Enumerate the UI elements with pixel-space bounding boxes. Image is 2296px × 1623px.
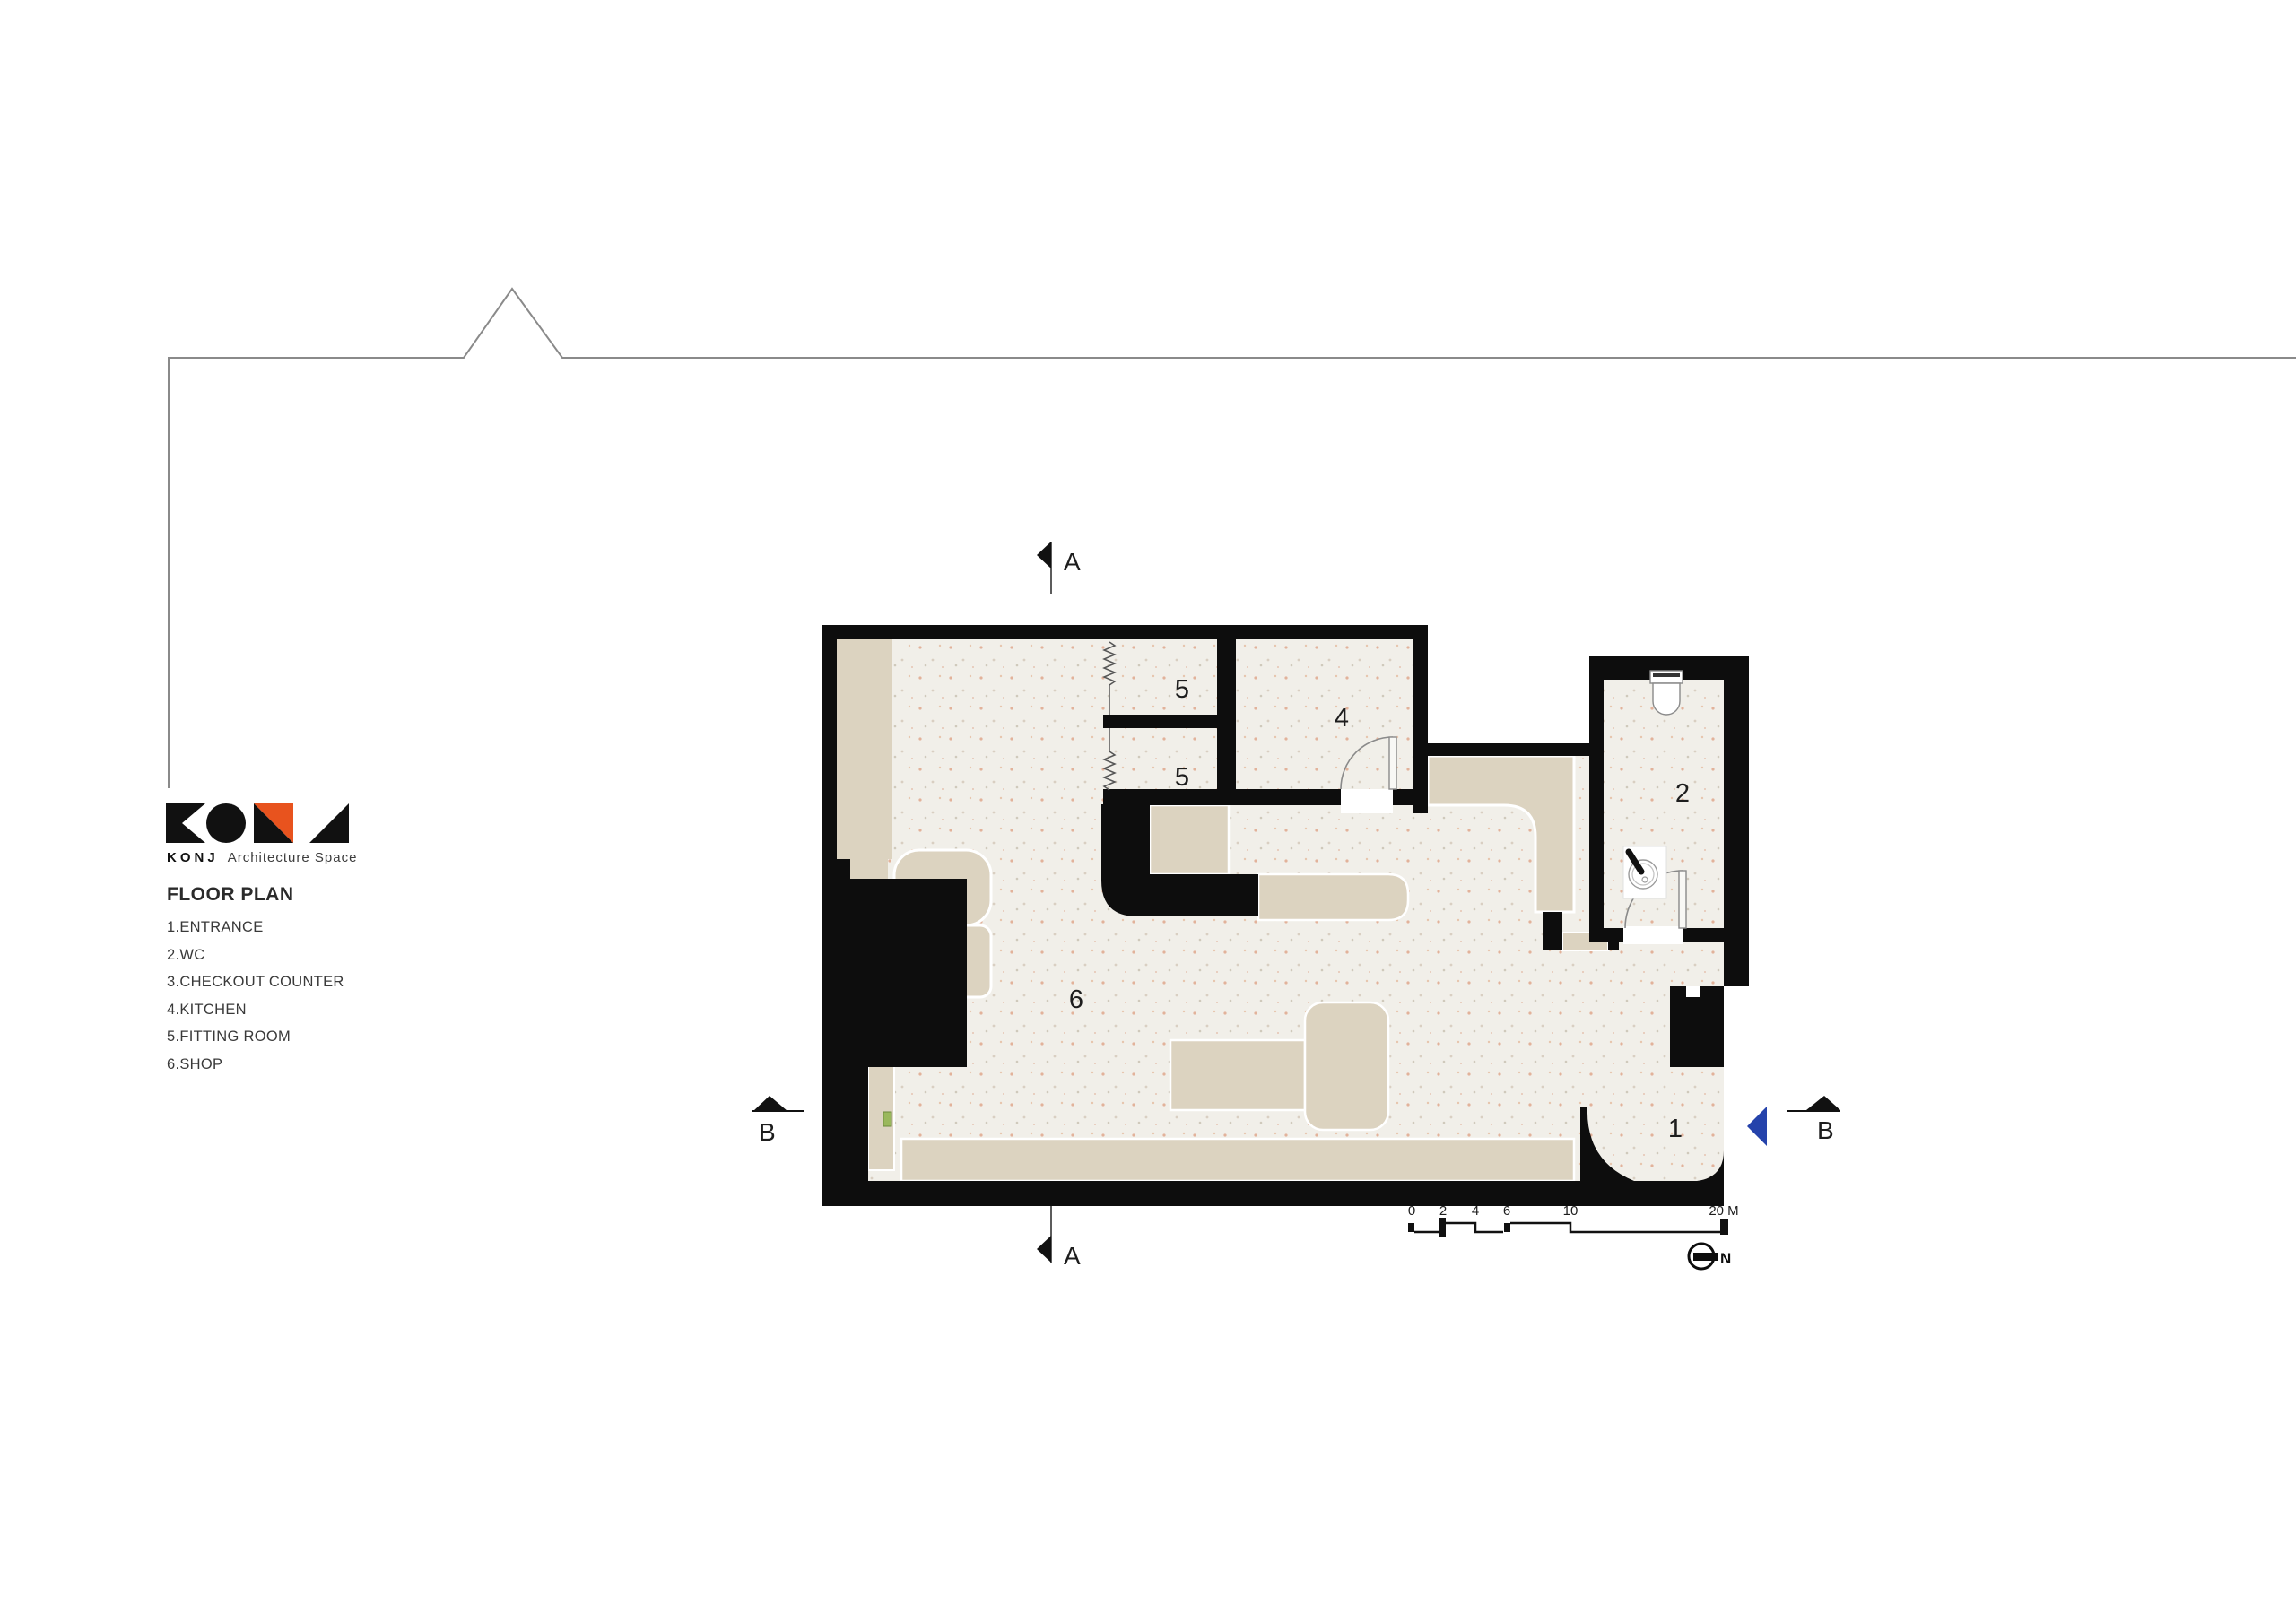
plan-drawing: 5 5 4 2 6 1 A A B B 0 2	[0, 0, 2296, 1623]
scale-bar-line	[1414, 1223, 1720, 1232]
scale-tick-20m: 20 M	[1709, 1203, 1738, 1219]
section-marker-a-bottom: A	[1037, 1206, 1081, 1270]
legend-item-wc: 2.WC	[167, 942, 344, 969]
wall-kitchen-door-stub	[1393, 789, 1413, 805]
scale-block-20	[1720, 1219, 1728, 1235]
section-marker-b-left: B	[752, 1096, 804, 1146]
logo-o-glyph	[206, 803, 246, 843]
plant-icon	[883, 1112, 891, 1126]
wall-entry-pier-step	[1700, 1051, 1724, 1067]
scale-tick-2: 2	[1439, 1203, 1447, 1219]
counter-block	[1150, 805, 1229, 874]
logo-tagline-text: Architecture Space	[228, 850, 358, 865]
section-arrow-icon	[1037, 542, 1051, 568]
north-indicator: N	[1689, 1244, 1731, 1269]
scale-block-0	[1408, 1223, 1414, 1232]
display-table-round	[1305, 1002, 1388, 1130]
wc-door-leaf	[1679, 871, 1686, 928]
scale-tick-4: 4	[1472, 1203, 1479, 1219]
wall-left-lower	[837, 1067, 868, 1181]
scale-bar: 0 2 4 6 10 20 M	[1408, 1203, 1739, 1237]
window-bench	[901, 1139, 1574, 1181]
section-marker-b-right: B	[1747, 1096, 1840, 1146]
label-shop: 6	[1069, 985, 1083, 1014]
sink-drain	[1642, 877, 1648, 882]
legend-item-kitchen: 4.KITCHEN	[167, 996, 344, 1024]
label-kitchen: 4	[1335, 704, 1349, 733]
entry-pier-notch	[1686, 986, 1700, 997]
logo-j-glyph	[309, 803, 349, 843]
wall-stub-lobby	[1608, 933, 1619, 950]
left-wall-liner	[837, 639, 892, 859]
wall-fitting-divider	[1103, 715, 1236, 728]
wall-stub-band-end	[1543, 912, 1562, 950]
legend-item-checkout-counter: 3.CHECKOUT COUNTER	[167, 968, 344, 996]
wall-kitchen-bottom	[1103, 789, 1341, 805]
section-marker-a-top: A	[1037, 542, 1081, 594]
scale-tick-6: 6	[1503, 1203, 1510, 1219]
wall-wc-right	[1724, 656, 1749, 986]
legend-item-entrance: 1.ENTRANCE	[167, 914, 344, 942]
floor-plan-sheet: { "logo": { "brand": "KONJ", "tagline": …	[0, 0, 2296, 1623]
north-label: N	[1720, 1250, 1731, 1267]
wall-right-main	[1413, 625, 1428, 813]
section-label-a-top: A	[1064, 548, 1081, 576]
wall-left-step	[837, 859, 850, 879]
kitchen-door-threshold	[1341, 789, 1393, 813]
section-arrow-icon	[1037, 1236, 1051, 1263]
toilet-bowl	[1653, 683, 1680, 715]
wall-alcove-block	[837, 879, 967, 1067]
label-wc: 2	[1675, 779, 1690, 808]
plan-legend: FLOOR PLAN 1.ENTRANCE 2.WC 3.CHECKOUT CO…	[167, 884, 344, 1078]
scale-tick-10: 10	[1563, 1203, 1578, 1219]
north-bar-icon	[1693, 1253, 1718, 1261]
section-blue-arrow-icon	[1747, 1107, 1767, 1146]
display-table	[1170, 1040, 1305, 1110]
konj-logo	[166, 803, 349, 843]
wall-top	[822, 625, 1428, 639]
legend-item-fitting-room: 5.FITTING ROOM	[167, 1023, 344, 1051]
page-title: FLOOR PLAN	[167, 884, 344, 906]
scale-block-6	[1504, 1223, 1510, 1232]
wall-wc-left	[1589, 656, 1604, 942]
checkout-counter	[1258, 874, 1408, 920]
logo-wordmark: KONJArchitecture Space	[167, 850, 357, 865]
left-wall-liner-step	[848, 859, 888, 879]
wc-door-threshold	[1623, 926, 1683, 944]
section-label-a-bottom: A	[1064, 1242, 1081, 1270]
scale-tick-0: 0	[1408, 1203, 1415, 1219]
wall-corridor-top	[1428, 743, 1589, 756]
legend-item-shop: 6.SHOP	[167, 1051, 344, 1079]
scale-block-2	[1439, 1218, 1446, 1237]
section-label-b-left: B	[759, 1118, 776, 1146]
label-fitting-room-bottom: 5	[1175, 763, 1189, 792]
wall-left	[822, 625, 837, 1206]
wall-wc-bottom-right	[1683, 928, 1724, 942]
label-entrance: 1	[1668, 1115, 1683, 1143]
logo-brand-text: KONJ	[167, 850, 219, 865]
label-fitting-room-top: 5	[1175, 675, 1189, 704]
section-label-b-right: B	[1817, 1116, 1834, 1144]
toilet-tank-lid	[1653, 673, 1680, 677]
section-arrow-icon	[753, 1096, 787, 1111]
kitchen-door-leaf	[1389, 737, 1396, 789]
wall-bottom	[822, 1181, 1724, 1206]
section-arrow-icon	[1806, 1096, 1840, 1110]
logo-k-glyph	[166, 803, 205, 843]
